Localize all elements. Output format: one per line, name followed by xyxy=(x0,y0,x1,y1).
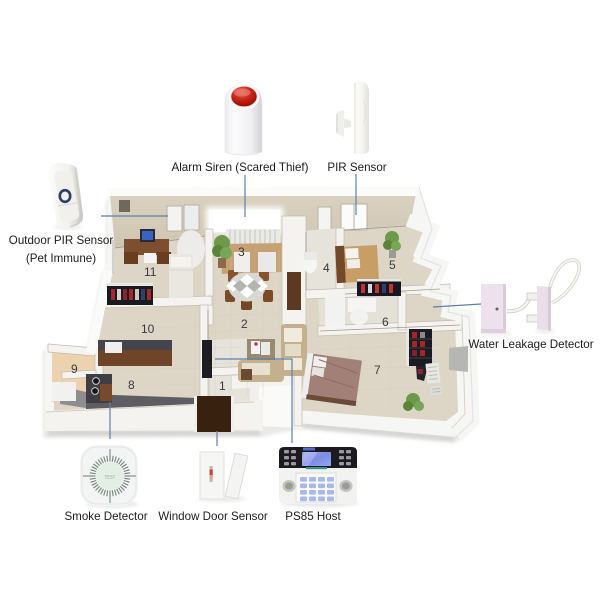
svg-text:Water Leakage Detector: Water Leakage Detector xyxy=(468,338,593,351)
svg-text:Alarm Siren (Scared Thief): Alarm Siren (Scared Thief) xyxy=(171,161,308,174)
svg-text:9: 9 xyxy=(71,362,78,376)
svg-text:TEST: TEST xyxy=(105,475,116,480)
svg-text:2: 2 xyxy=(241,317,248,331)
svg-text:6: 6 xyxy=(382,315,389,329)
svg-text:Smoke Detector: Smoke Detector xyxy=(64,510,147,523)
svg-text:7: 7 xyxy=(374,363,381,377)
svg-text:Outdoor PIR Sensor: Outdoor PIR Sensor xyxy=(9,234,114,247)
svg-text:4: 4 xyxy=(323,261,330,275)
svg-text:PIR Sensor: PIR Sensor xyxy=(327,161,386,174)
svg-text:11: 11 xyxy=(144,265,157,279)
svg-text:5: 5 xyxy=(389,258,396,272)
svg-text:(Pet Immune): (Pet Immune) xyxy=(26,252,96,265)
svg-text:PS85 Host: PS85 Host xyxy=(285,510,341,523)
svg-text:Window Door Sensor: Window Door Sensor xyxy=(158,510,268,523)
svg-text:10: 10 xyxy=(141,322,155,336)
svg-text:8: 8 xyxy=(128,378,135,392)
svg-text:3: 3 xyxy=(238,245,245,259)
svg-text:1: 1 xyxy=(219,379,226,393)
